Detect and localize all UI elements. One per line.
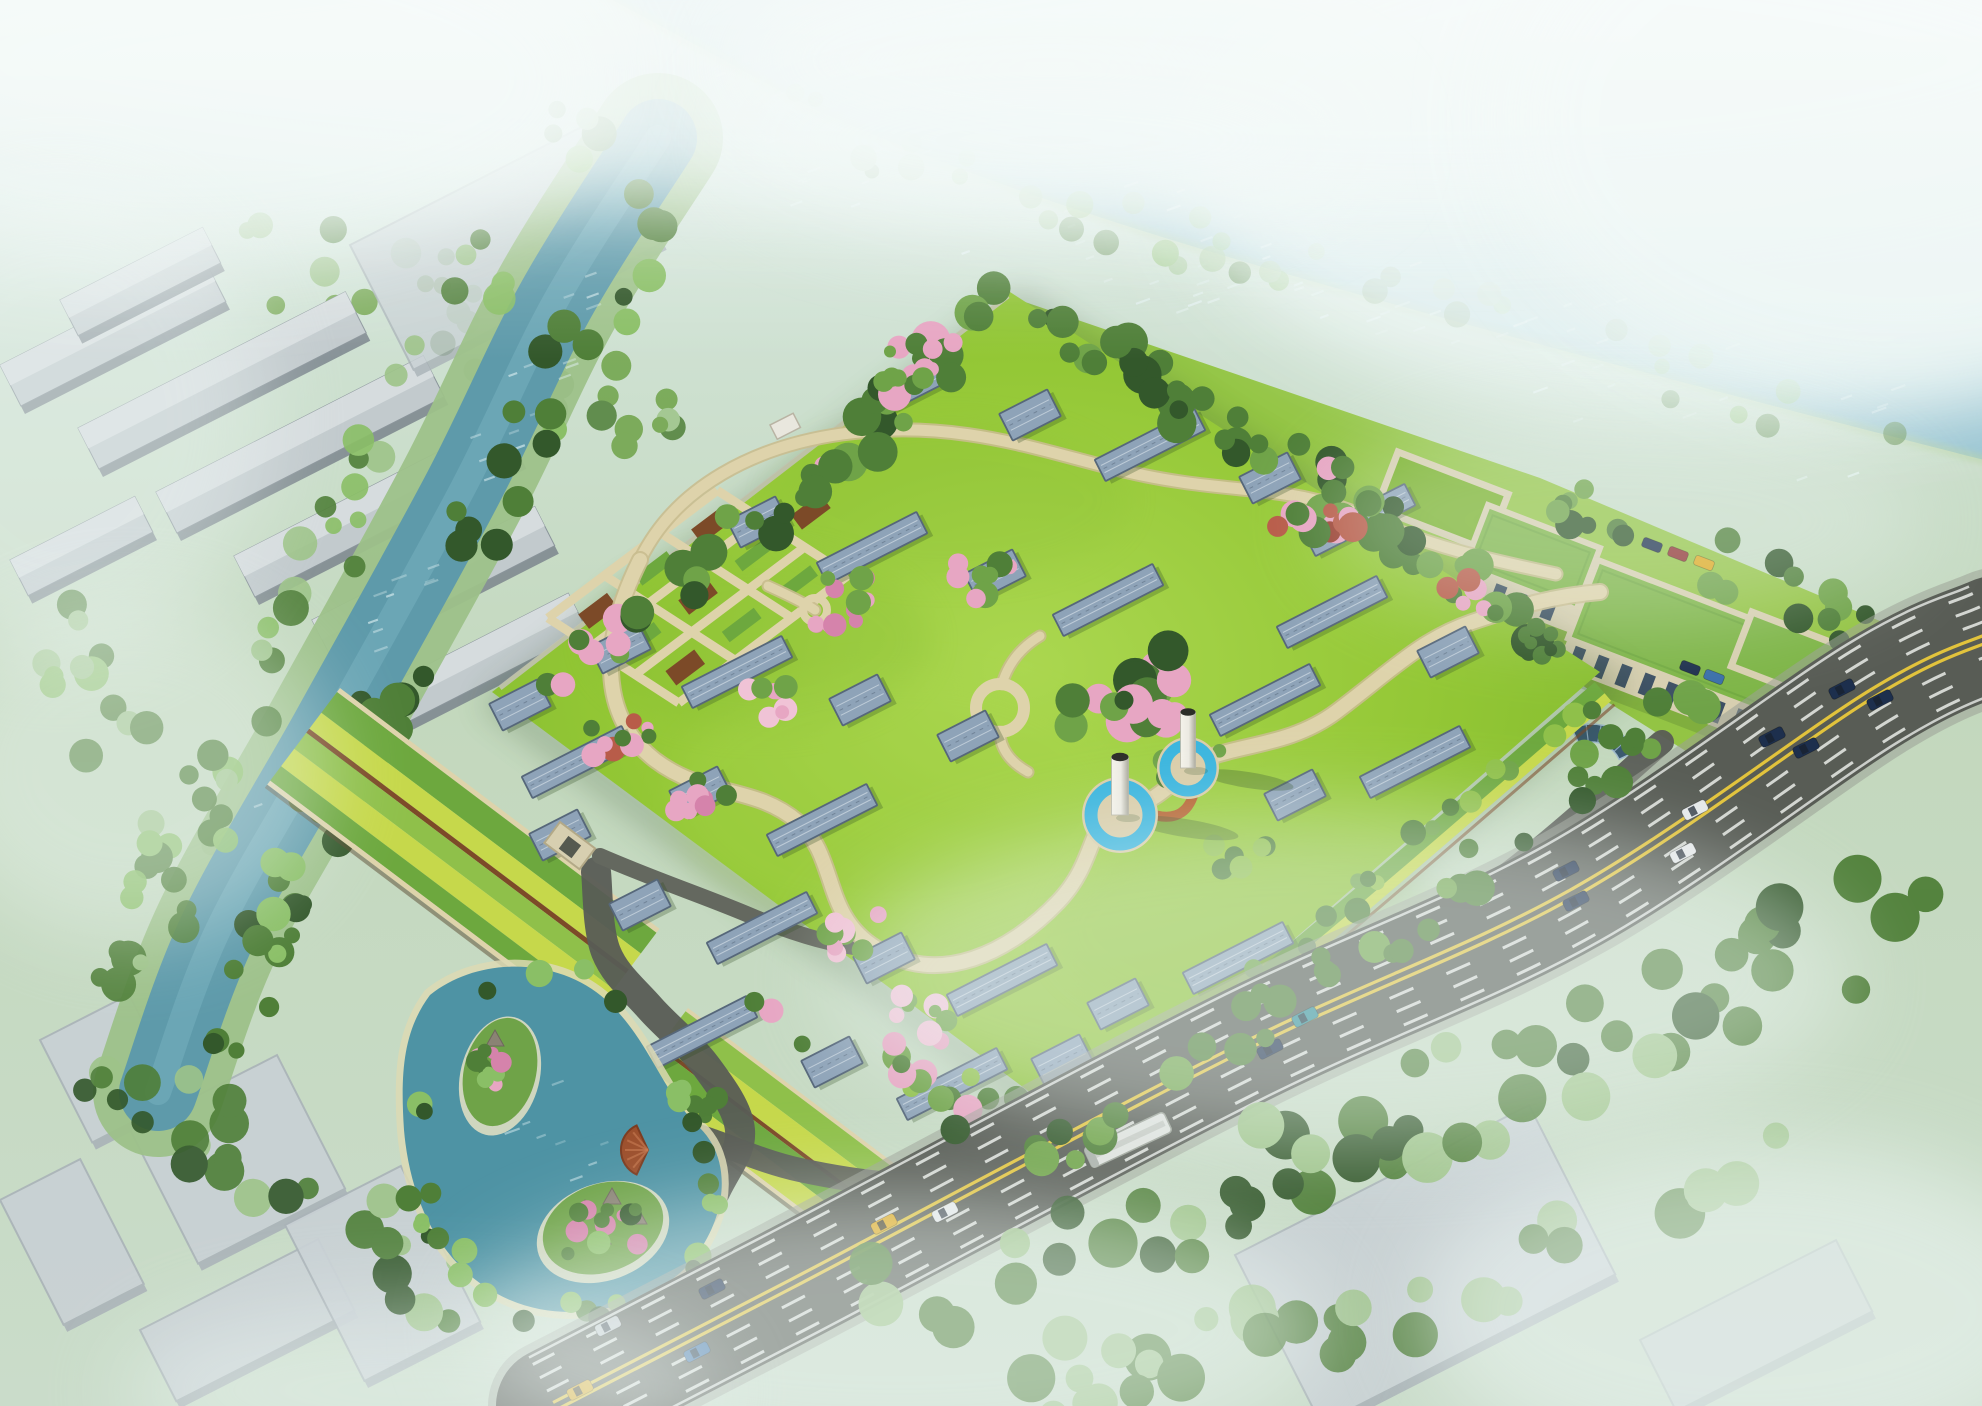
atmosphere-veil bbox=[0, 0, 1982, 360]
tower-top-opening bbox=[1112, 753, 1129, 762]
fog-patch bbox=[1320, 410, 1920, 630]
fog-patch bbox=[830, 810, 1850, 1150]
aerial-rendering: Aerial architectural rendering of a rive… bbox=[0, 0, 1982, 1406]
rendering-stage: Aerial architectural rendering of a rive… bbox=[0, 0, 1982, 1406]
tower-cylinder bbox=[1112, 757, 1129, 815]
tower-cylinder bbox=[1181, 712, 1196, 768]
tower-top-opening bbox=[1181, 708, 1196, 716]
